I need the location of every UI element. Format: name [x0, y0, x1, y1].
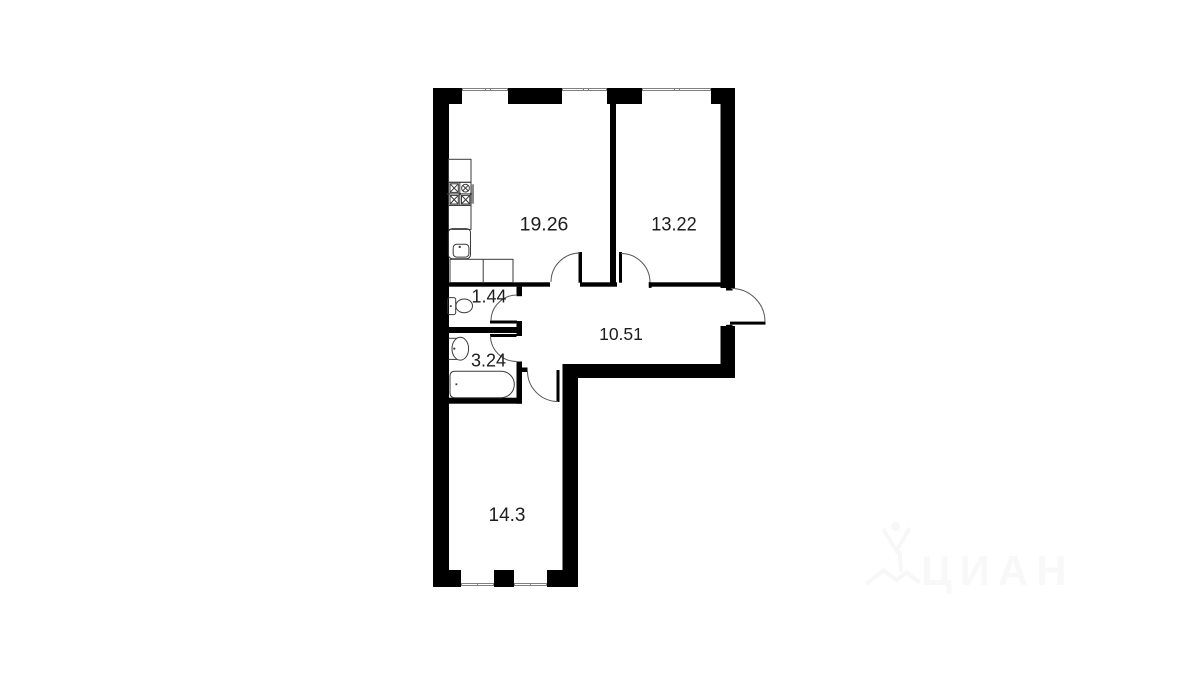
svg-text:14.3: 14.3 [489, 505, 526, 526]
svg-text:ЦИАН: ЦИАН [921, 547, 1075, 594]
svg-text:19.26: 19.26 [520, 214, 569, 236]
svg-text:10.51: 10.51 [599, 324, 643, 344]
svg-text:1.44: 1.44 [471, 287, 506, 307]
svg-text:3.24: 3.24 [471, 351, 506, 371]
svg-text:13.22: 13.22 [651, 214, 697, 236]
